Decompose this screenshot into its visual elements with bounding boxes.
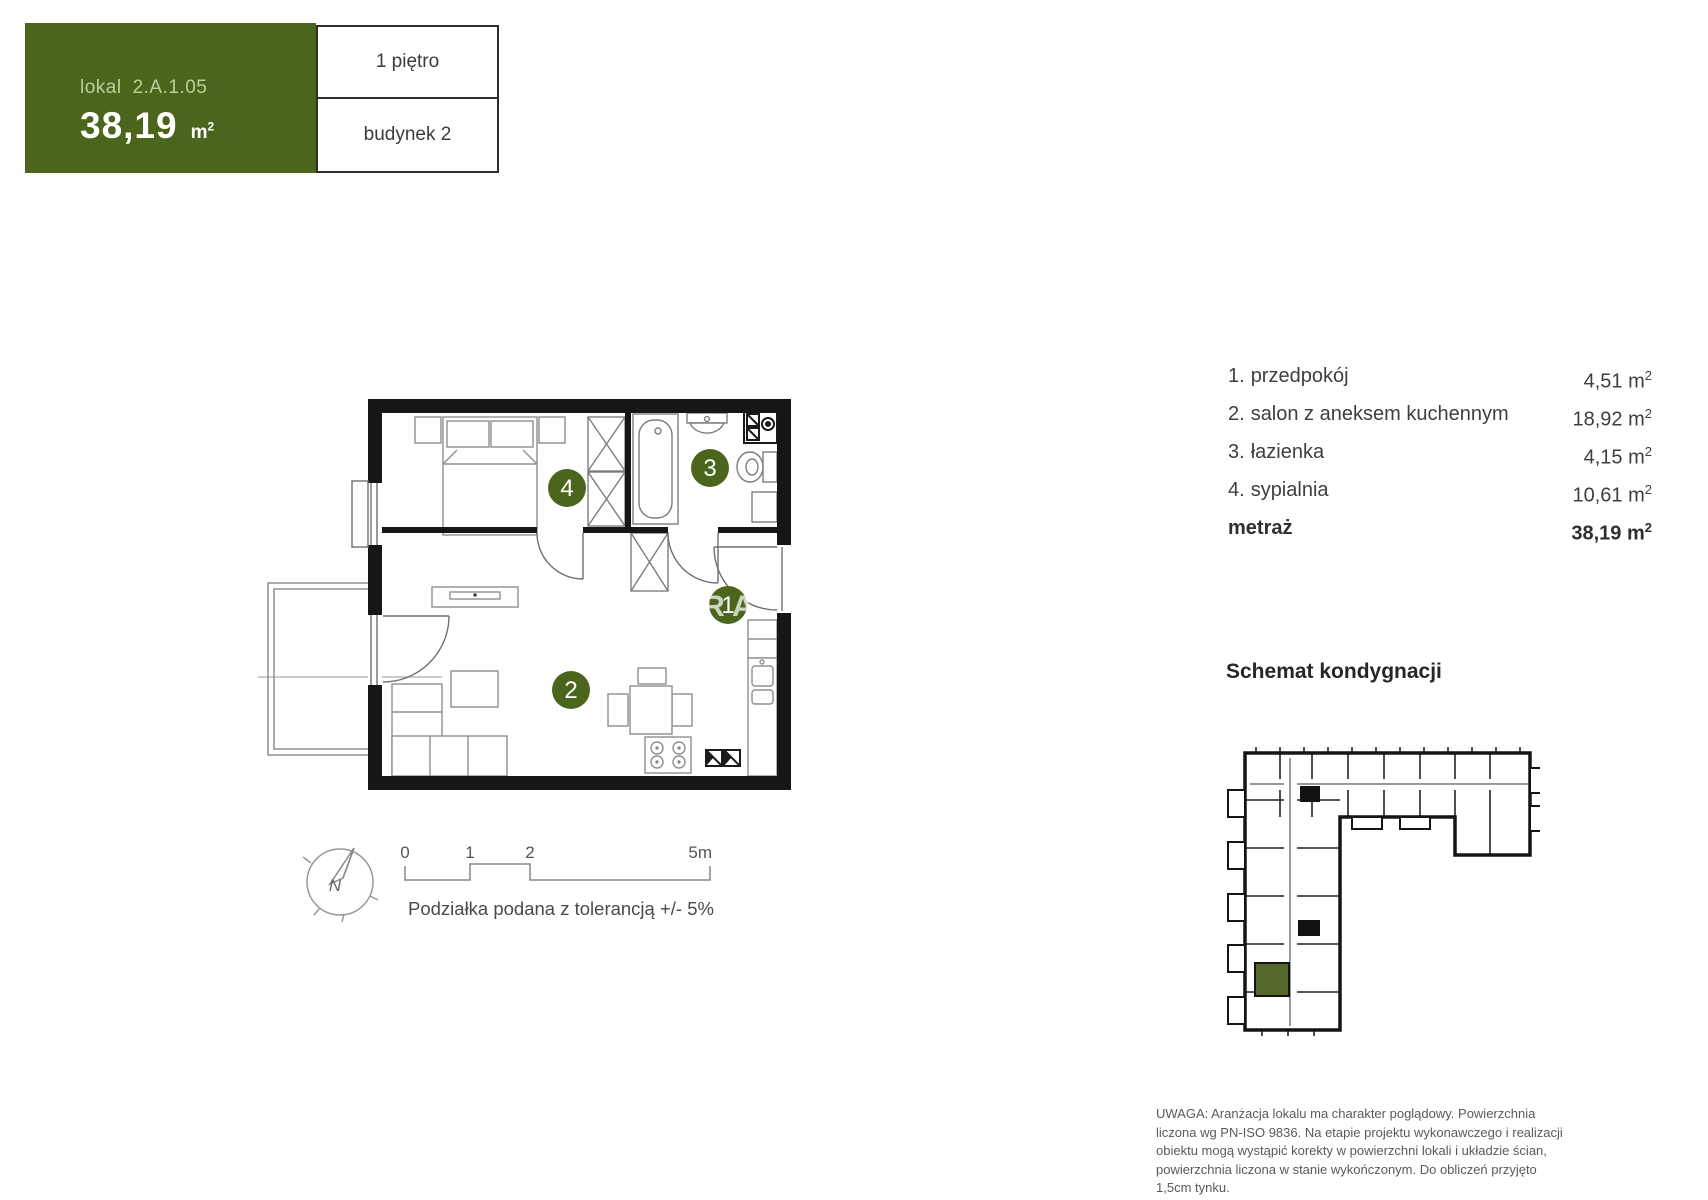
scale-bar: 0 1 2 5m xyxy=(400,843,712,880)
schematic-corridors xyxy=(1250,758,1530,1026)
bathroom-sink xyxy=(687,413,727,433)
room-row-1: 1.przedpokój 4,51 m2 xyxy=(1228,363,1652,389)
room-marker-bedroom: 4 xyxy=(548,469,586,507)
hall-closet xyxy=(631,533,668,591)
bed xyxy=(415,417,565,535)
toilet xyxy=(737,452,777,482)
total-label: metraż xyxy=(1228,515,1292,541)
unit-area-line: 38,19m2 xyxy=(80,105,316,147)
apartment-plan: 4 3 2 1 R A xyxy=(240,390,800,800)
bathtub xyxy=(633,414,678,524)
svg-text:2: 2 xyxy=(564,677,577,704)
dining-table xyxy=(608,668,692,734)
unit-header-box: lokal2.A.1.05 38,19m2 xyxy=(25,23,316,173)
lokal-label: lokal xyxy=(80,77,122,98)
unit-label-line: lokal2.A.1.05 xyxy=(80,77,316,99)
room-row-3: 3.łazienka 4,15 m2 xyxy=(1228,439,1652,465)
scale-caption: Podziałka podana z tolerancją +/- 5% xyxy=(408,898,714,920)
bedroom-window xyxy=(352,481,377,547)
floor-schematic xyxy=(1130,680,1540,1040)
compass-north-label: N xyxy=(329,876,342,895)
coffee-table xyxy=(451,671,498,707)
floor-cell: 1 piętro xyxy=(318,27,497,99)
svg-text:5m: 5m xyxy=(688,843,712,862)
disclaimer-text: UWAGA: Aranżacja lokalu ma charakter pog… xyxy=(1156,1105,1566,1198)
kitchen-counter xyxy=(748,620,777,776)
building-cell: budynek 2 xyxy=(318,99,497,171)
room-marker-hall: 1 R A xyxy=(703,586,754,624)
watermark-letter-r: R xyxy=(703,590,725,623)
balcony xyxy=(268,583,368,755)
wardrobe xyxy=(588,417,625,526)
dishwasher-icons xyxy=(706,750,740,766)
balcony-door xyxy=(371,615,449,685)
svg-text:3: 3 xyxy=(703,455,716,482)
watermark-letter-a: A xyxy=(732,590,754,623)
tv-stand xyxy=(432,587,518,607)
svg-text:4: 4 xyxy=(560,475,573,502)
svg-text:2: 2 xyxy=(525,843,534,862)
floor-plan-page: lokal2.A.1.05 38,19m2 1 piętro budynek 2 xyxy=(0,0,1708,1200)
bathroom-door xyxy=(668,533,718,583)
room-row-4: 4.sypialnia 10,61 m2 xyxy=(1228,477,1652,503)
unit-m: m xyxy=(191,122,208,143)
svg-text:1: 1 xyxy=(465,843,474,862)
total-area-row: metraż 38,19 m2 xyxy=(1228,515,1652,541)
washing-machine-icon xyxy=(744,411,777,443)
room-marker-bathroom: 3 xyxy=(691,449,729,487)
room-marker-living: 2 xyxy=(552,671,590,709)
bathroom-cabinet xyxy=(752,492,777,522)
highlighted-unit xyxy=(1255,963,1289,996)
schematic-cores xyxy=(1298,786,1320,936)
unit-sup: 2 xyxy=(208,120,215,134)
unit-number: 2.A.1.05 xyxy=(133,77,208,98)
stove xyxy=(645,737,691,773)
floor-building-table: 1 piętro budynek 2 xyxy=(316,25,499,173)
bedroom-door xyxy=(537,533,583,579)
room-list: 1.przedpokój 4,51 m2 2.salon z aneksem k… xyxy=(1228,363,1652,553)
room-row-2: 2.salon z aneksem kuchennym 18,92 m2 xyxy=(1228,401,1652,427)
svg-text:0: 0 xyxy=(400,843,409,862)
unit-area-value: 38,19 xyxy=(80,105,178,146)
